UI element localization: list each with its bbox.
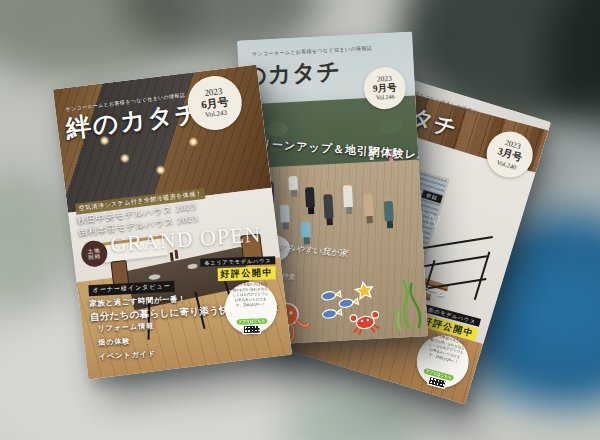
person-figure [288, 176, 298, 190]
person-figure [280, 204, 290, 222]
starfish-icon [355, 281, 374, 299]
magazine-cover-june: サンコーホームとお客様をつなぐ住まいの情報誌 絆のカタチ 2023 6月号 Vo… [53, 65, 292, 380]
issue-volume: Vol.246 [376, 94, 395, 102]
topics-list: リフォーム情報 畑の体験 イベントガイド [97, 319, 156, 364]
app-pill-label: アプリはこちら [236, 319, 267, 326]
magazine-mockup-scene: サンコーホームとお客様をつなぐ住まいの情報誌 絆のカタチ 2023 3月号 Vo… [0, 0, 600, 440]
open-status-highlight: 好評公開中 [217, 266, 276, 281]
model-house-label: 各エリアでモデルハウス [200, 256, 275, 267]
person-figure [343, 185, 353, 207]
person-figure [301, 221, 311, 237]
topic-item: リフォーム情報 [97, 319, 155, 336]
interview-label: オーナー様インタビュー [88, 281, 174, 296]
issue-volume: Vol.243 [205, 109, 228, 119]
qr-code [243, 325, 261, 334]
background-blur-blob [0, 170, 75, 310]
topic-item: イベントガイド [99, 347, 157, 364]
visit-note-text: ご見学希望の方は右記載のお問い合わせ先もしくは公式アプリでもお申込みいただけます… [231, 281, 270, 308]
person-figure [384, 201, 394, 221]
person-figure [305, 187, 315, 207]
crab-icon [350, 311, 382, 336]
visit-info-bubble: ご見学希望の方は右記載のお問い合わせ先もしくは公式アプリでもお申込みいただけます… [224, 281, 278, 335]
seaweed-icon [392, 278, 422, 331]
person-figure [363, 194, 373, 216]
land-badge-line: 同時 [88, 253, 102, 261]
person-figure [323, 194, 333, 218]
model-house-corner: 各エリアでモデルハウス 好評公開中 ご見学希望の方は右記載のお問い合わせ先もしく… [200, 256, 278, 336]
